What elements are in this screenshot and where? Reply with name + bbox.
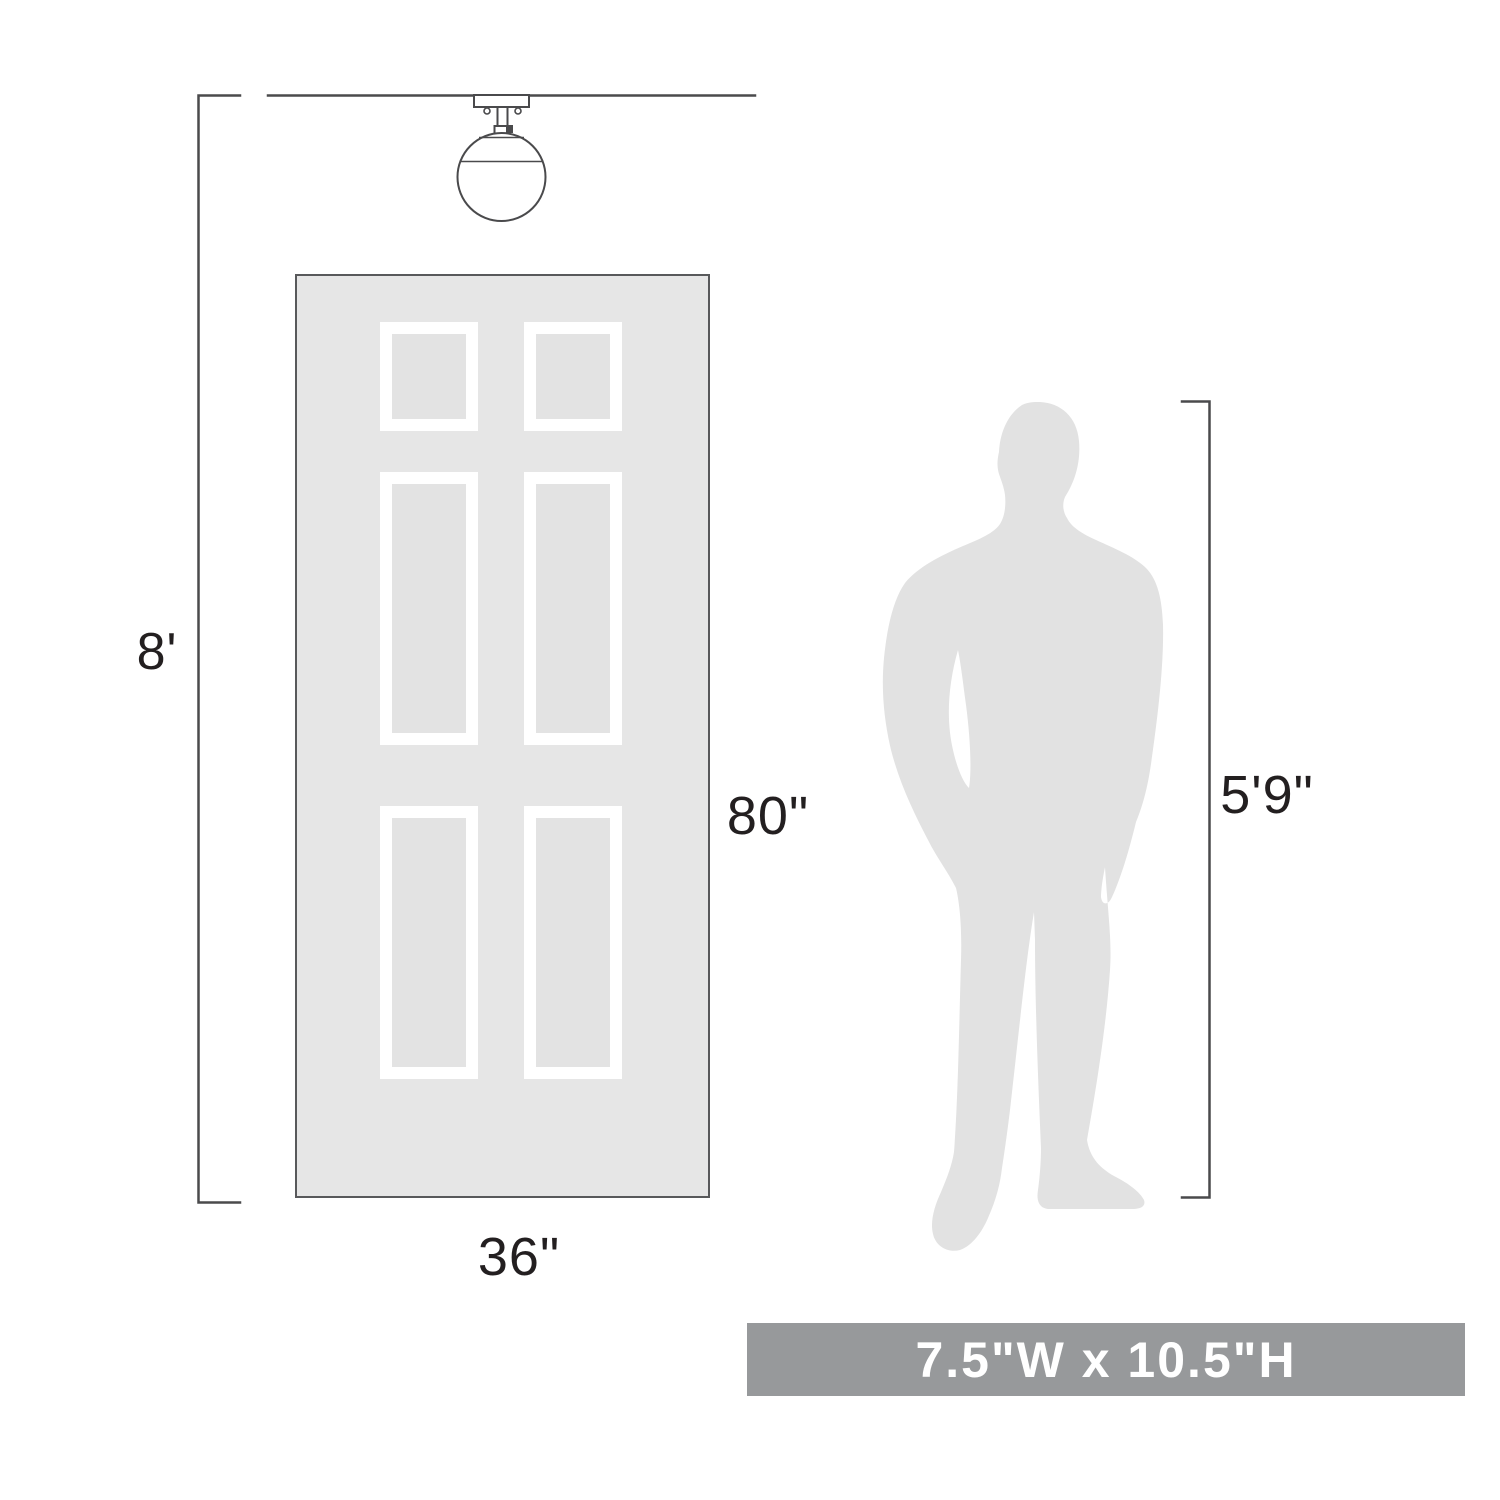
ceiling-light-icon xyxy=(458,95,546,221)
door-panel-middle-left xyxy=(380,472,478,745)
ceiling-height-label: 8' xyxy=(137,622,178,682)
fixture-canopy xyxy=(474,95,529,107)
size-banner: 7.5"W x 10.5"H xyxy=(747,1323,1465,1396)
door-panel-top-left xyxy=(380,322,478,431)
person-height-bracket xyxy=(1182,402,1210,1198)
ceiling-height-bracket xyxy=(199,96,241,1203)
fixture-stem xyxy=(498,107,508,126)
fixture-screw-left xyxy=(484,108,490,114)
door-panel-middle-right xyxy=(524,472,622,745)
door-panel-bottom-right xyxy=(524,806,622,1079)
door-panel-top-right xyxy=(524,322,622,431)
scale-diagram: 8' 80" 36" 5'9" 7.5"W x 10.5"H xyxy=(0,0,1500,1500)
person-silhouette xyxy=(883,402,1163,1251)
fixture-globe xyxy=(458,133,546,221)
diagram-vector-layer xyxy=(0,0,1500,1500)
door-width-label: 36" xyxy=(478,1226,560,1288)
person-height-label: 5'9" xyxy=(1220,764,1314,826)
fixture-screw-right xyxy=(515,108,521,114)
size-banner-text: 7.5"W x 10.5"H xyxy=(915,1331,1296,1389)
door-height-label: 80" xyxy=(727,785,809,847)
door-panel-bottom-left xyxy=(380,806,478,1079)
fixture-collar-nub xyxy=(506,125,513,133)
door-shape xyxy=(295,274,710,1198)
